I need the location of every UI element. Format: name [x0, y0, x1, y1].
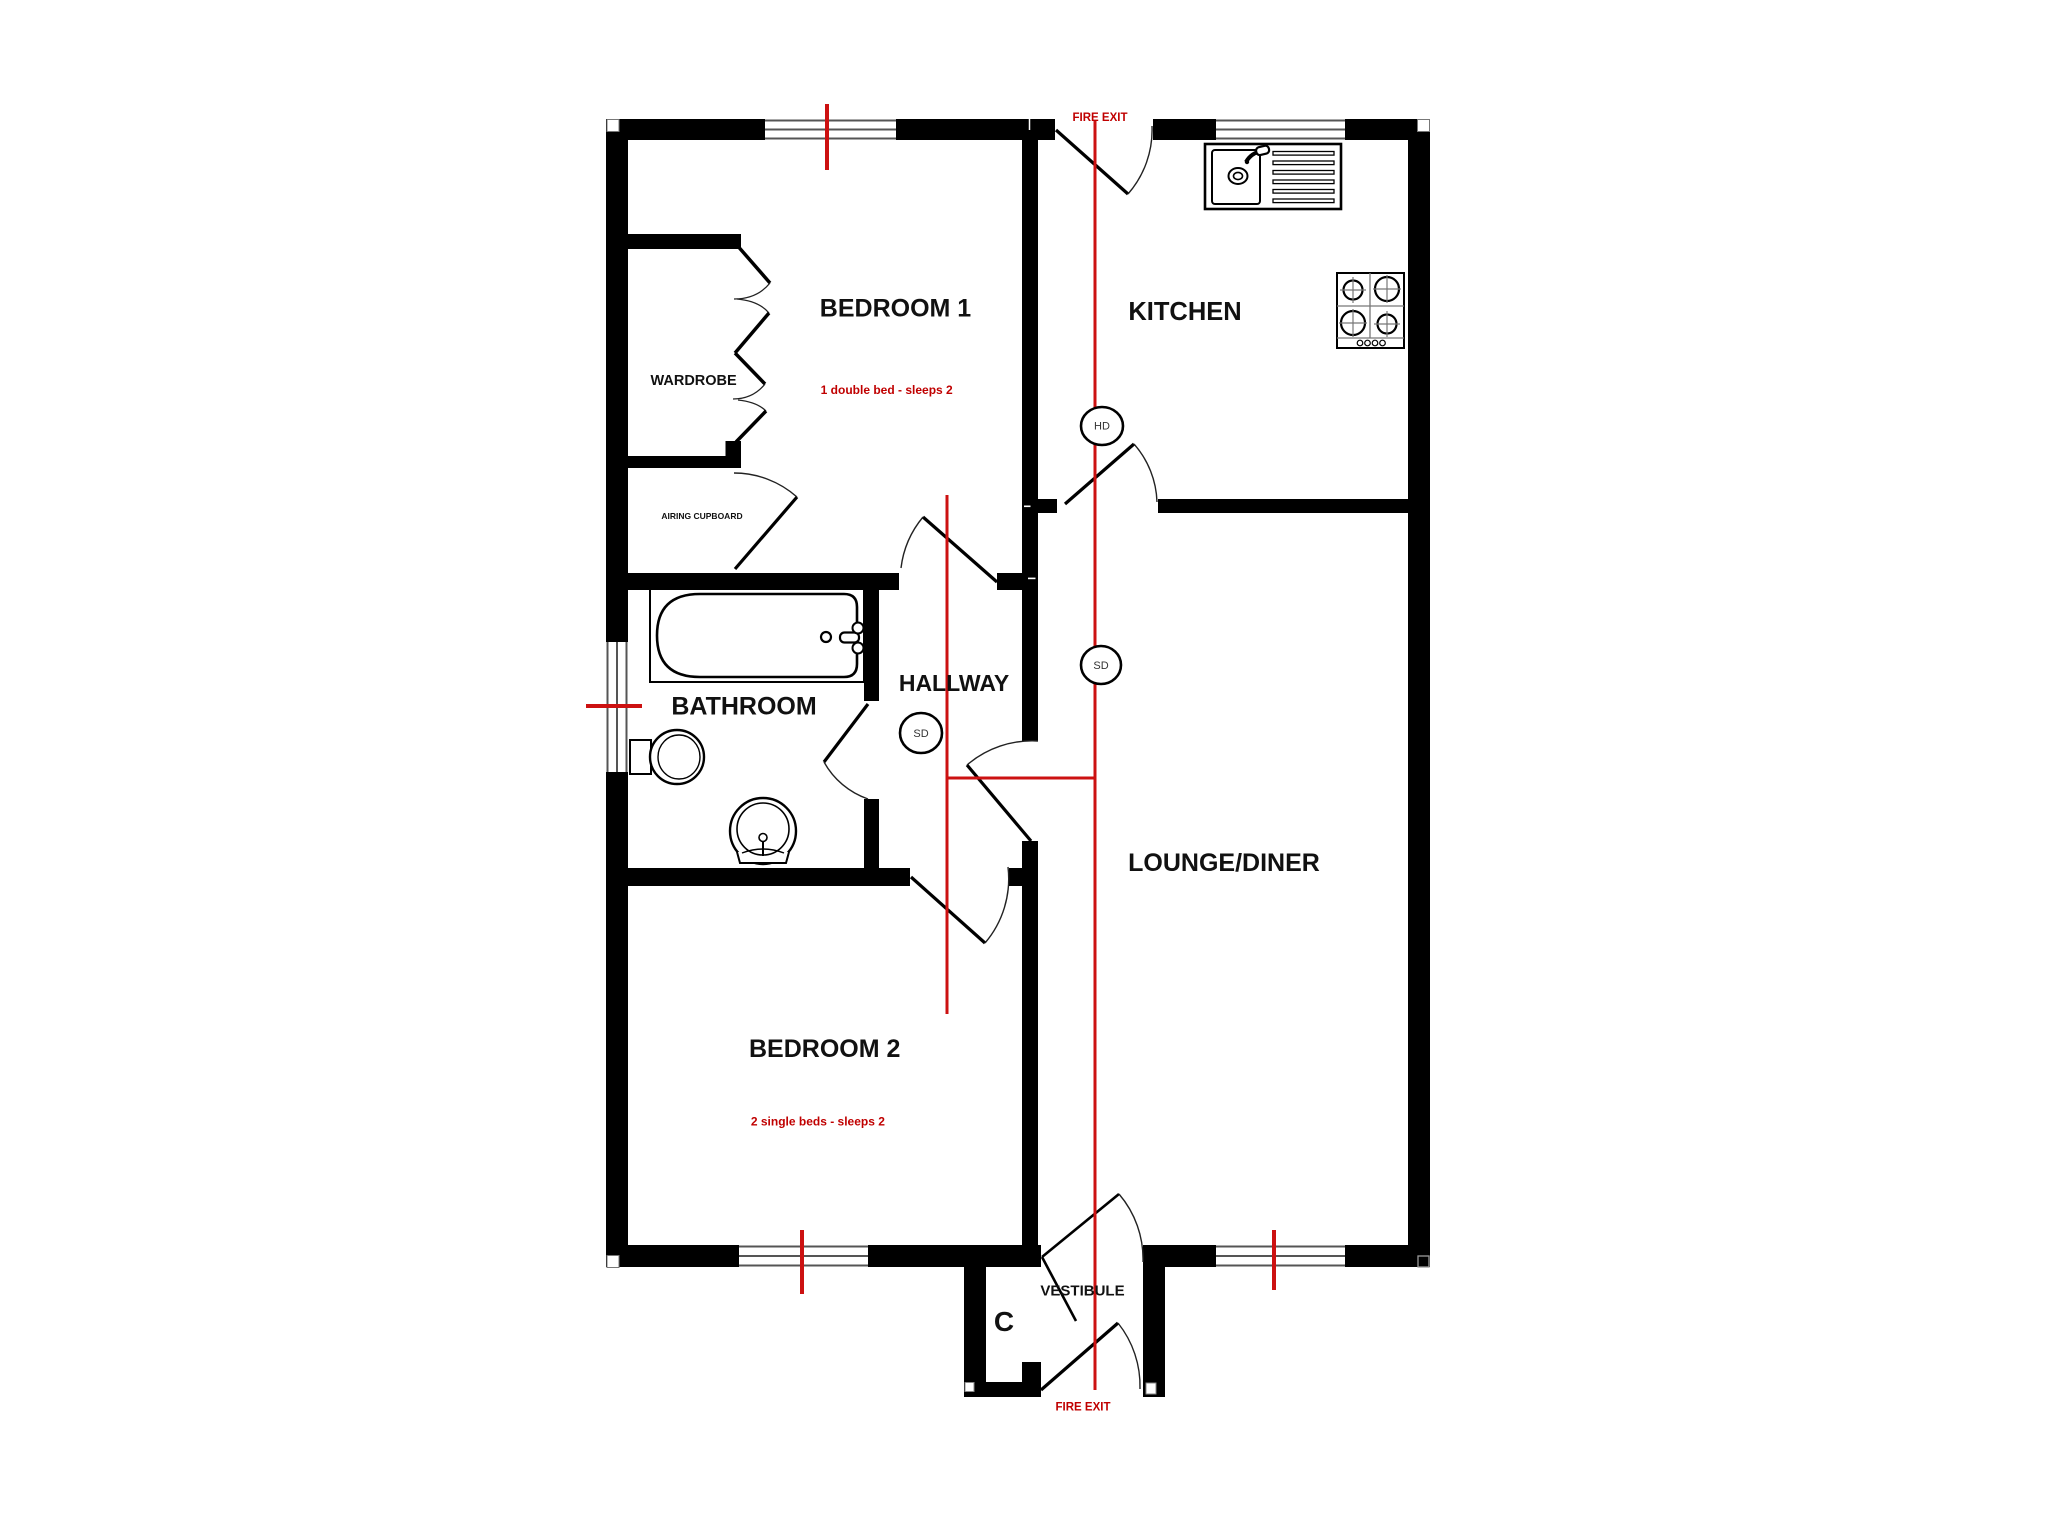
svg-text:FIRE EXIT: FIRE EXIT — [1056, 1402, 1111, 1414]
svg-text:HALLWAY: HALLWAY — [899, 670, 1009, 696]
svg-text:WARDROBE: WARDROBE — [650, 373, 737, 389]
svg-text:BEDROOM 1: BEDROOM 1 — [820, 295, 972, 323]
svg-text:SD: SD — [913, 728, 928, 740]
svg-text:2 single beds - sleeps 2: 2 single beds - sleeps 2 — [751, 1115, 885, 1129]
svg-text:C: C — [994, 1306, 1014, 1337]
svg-text:BEDROOM 2: BEDROOM 2 — [749, 1035, 900, 1063]
svg-text:HD: HD — [1094, 421, 1110, 433]
svg-text:FIRE EXIT: FIRE EXIT — [1073, 112, 1128, 124]
svg-text:1 double bed - sleeps 2: 1 double bed - sleeps 2 — [821, 383, 953, 397]
svg-text:SD: SD — [1093, 660, 1108, 672]
svg-text:BATHROOM: BATHROOM — [671, 693, 816, 721]
svg-text:LOUNGE/DINER: LOUNGE/DINER — [1128, 849, 1320, 877]
svg-text:VESTIBULE: VESTIBULE — [1040, 1283, 1124, 1300]
svg-text:AIRING CUPBOARD: AIRING CUPBOARD — [661, 511, 742, 521]
svg-text:KITCHEN: KITCHEN — [1128, 298, 1241, 326]
